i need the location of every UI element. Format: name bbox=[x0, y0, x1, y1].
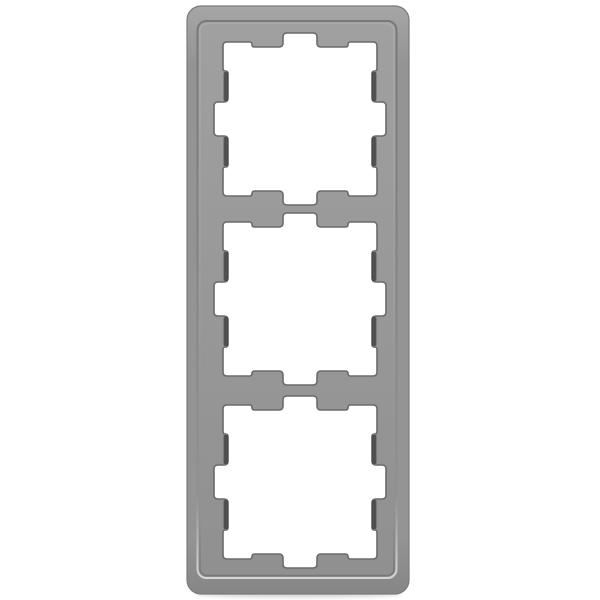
wall-frame-3gang-image bbox=[0, 0, 600, 600]
tab-shadow-slit bbox=[224, 317, 229, 346]
tab-shadow-slit bbox=[372, 137, 377, 166]
opening-cutout bbox=[214, 213, 386, 385]
tab-shadow-slit bbox=[372, 435, 377, 464]
tab-shadow-slit bbox=[372, 72, 377, 101]
tab-shadow-slit bbox=[224, 435, 229, 464]
opening-cutout bbox=[214, 396, 386, 568]
tab-shadow-slit bbox=[224, 137, 229, 166]
tab-shadow-slit bbox=[224, 500, 229, 529]
tab-shadow-slit bbox=[224, 72, 229, 101]
tab-shadow-slit bbox=[224, 252, 229, 281]
frame-opening-1 bbox=[214, 33, 386, 205]
frame-opening-3 bbox=[214, 396, 386, 568]
frame-opening-2 bbox=[214, 213, 386, 385]
tab-shadow-slit bbox=[372, 500, 377, 529]
opening-cutout bbox=[214, 33, 386, 205]
product-photo bbox=[0, 0, 600, 600]
tab-shadow-slit bbox=[372, 317, 377, 346]
tab-shadow-slit bbox=[372, 252, 377, 281]
